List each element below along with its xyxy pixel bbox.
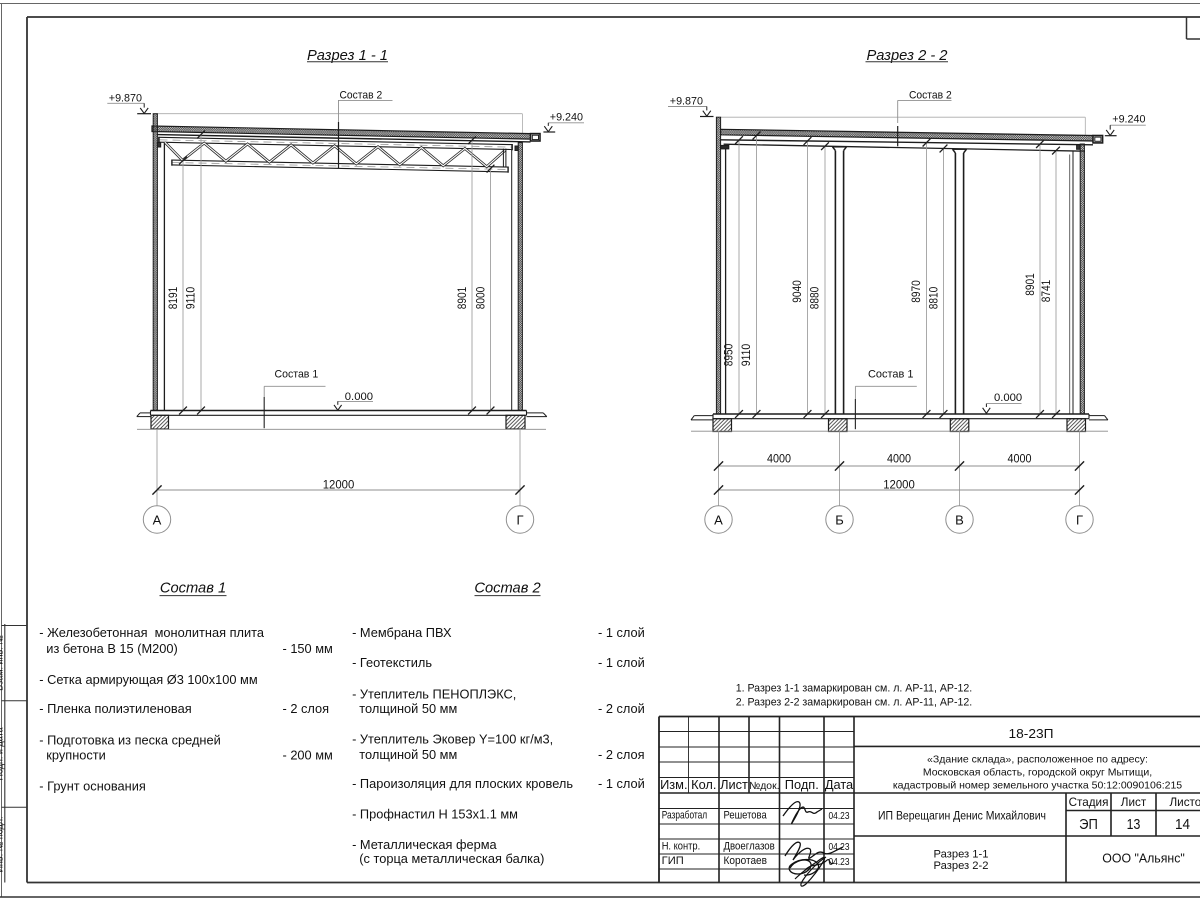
svg-text:8901: 8901 [1023,273,1037,296]
svg-text:Инв. № подл.: Инв. № подл. [0,816,5,872]
svg-text:04.23: 04.23 [829,842,850,853]
svg-text:Состав 1: Состав 1 [868,368,914,380]
svg-text:8970: 8970 [909,280,923,303]
svg-text:Кол.: Кол. [691,777,716,792]
svg-text:- Профнастил Н 153х1.1 мм: - Профнастил Н 153х1.1 мм [352,807,518,822]
svg-text:8880: 8880 [808,286,822,309]
svg-text:Взам. инв. №: Взам. инв. № [0,635,5,691]
svg-text:(с торца металлическая балка): (с торца металлическая балка) [359,851,544,866]
svg-text:12000: 12000 [883,478,915,492]
svg-text:8191: 8191 [166,287,180,310]
svg-text:Стадия: Стадия [1069,796,1109,809]
svg-text:1. Разрез 1-1 замаркирован см.: 1. Разрез 1-1 замаркирован см. л. АР-11,… [736,682,973,694]
svg-text:- Подготовка из песка средней: - Подготовка из песка средней [39,732,220,747]
svg-text:А: А [714,512,723,527]
svg-text:Состав 1: Состав 1 [160,580,226,596]
svg-text:ИП Верещагин Денис Михайлович: ИП Верещагин Денис Михайлович [878,810,1046,822]
svg-text:- 2 слой: - 2 слой [598,701,645,716]
svg-text:- 150 мм: - 150 мм [283,641,333,656]
svg-text:Лист: Лист [1121,796,1147,809]
svg-text:9110: 9110 [739,343,753,366]
svg-text:Разработал: Разработал [662,809,708,821]
svg-text:12000: 12000 [323,478,355,492]
svg-text:8000: 8000 [473,286,487,309]
svg-text:Б: Б [835,512,844,527]
svg-text:8810: 8810 [927,286,941,309]
svg-text:В: В [955,512,964,527]
svg-text:«Здание склада», расположенное: «Здание склада», расположенное по адресу… [927,754,1148,766]
svg-text:кадастровый номер земельного у: кадастровый номер земельного участка 50:… [893,780,1182,792]
svg-text:ГИП: ГИП [662,855,684,867]
svg-text:- Пленка полиэтиленовая: - Пленка полиэтиленовая [39,701,191,716]
svg-text:14: 14 [1175,817,1190,833]
svg-text:Листов: Листов [1170,796,1200,809]
svg-text:Двоеглазов: Двоеглазов [724,840,776,852]
svg-text:- Сетка армирующая Ø3 100х100: - Сетка армирующая Ø3 100х100 мм [39,672,257,687]
svg-text:13: 13 [1127,817,1141,833]
svg-text:Г: Г [1076,512,1083,527]
svg-text:2. Разрез 2-2 замаркирован см.: 2. Разрез 2-2 замаркирован см. л. АР-11,… [736,697,973,709]
svg-text:Разрез 2-2: Разрез 2-2 [934,860,989,872]
svg-text:8950: 8950 [722,343,736,366]
svg-text:Подп.: Подп. [785,777,819,792]
svg-text:+9.870: +9.870 [670,96,703,108]
svg-text:Изм.: Изм. [660,777,687,792]
svg-text:- Пароизоляция для плоских кро: - Пароизоляция для плоских кровель [352,776,573,791]
svg-text:- Грунт основания: - Грунт основания [39,779,146,794]
svg-text:8741: 8741 [1039,280,1053,303]
svg-text:- Утеплитель ПЕНОПЛЭКС,: - Утеплитель ПЕНОПЛЭКС, [352,687,516,702]
svg-text:04.23: 04.23 [829,857,850,868]
svg-text:9110: 9110 [184,286,198,309]
svg-text:Состав 2: Состав 2 [340,90,383,102]
svg-text:- Железобетонная монолитная п: - Железобетонная монолитная плита [39,625,265,640]
svg-text:Решетова: Решетова [724,809,767,821]
svg-text:Н. контр.: Н. контр. [662,840,701,852]
svg-text:18-23П: 18-23П [1009,726,1054,741]
svg-text:Состав 2: Состав 2 [474,580,540,596]
svg-text:толщиной 50 мм: толщиной 50 мм [359,701,457,716]
svg-text:4000: 4000 [1008,452,1032,466]
svg-text:+9.870: +9.870 [109,92,142,104]
svg-text:Состав 1: Состав 1 [275,368,319,380]
svg-text:- 1 слой: - 1 слой [598,625,645,640]
svg-text:Дата: Дата [825,777,854,792]
svg-text:8901: 8901 [455,287,469,310]
svg-text:толщиной 50 мм: толщиной 50 мм [359,747,457,762]
svg-text:- Геотекстиль: - Геотекстиль [352,655,432,670]
svg-text:- 2 слоя: - 2 слоя [283,701,330,716]
svg-text:+9.240: +9.240 [1112,113,1145,125]
svg-text:4000: 4000 [767,452,791,466]
svg-text:- 2 слоя: - 2 слоя [598,747,645,762]
svg-text:крупности: крупности [46,748,106,763]
svg-text:Коротаев: Коротаев [724,855,768,867]
svg-text:- Утеплитель Эковер Y=100 кг/м: - Утеплитель Эковер Y=100 кг/м3, [352,732,553,747]
svg-text:Московская область, городской: Московская область, городской округ Мыти… [923,767,1152,779]
svg-text:А: А [153,512,162,527]
svg-text:Лист: Лист [720,777,748,792]
svg-text:ЭП: ЭП [1079,817,1098,833]
svg-text:№док.: №док. [749,781,779,792]
svg-text:4000: 4000 [887,452,911,466]
svg-text:Разрез 1-1: Разрез 1-1 [934,848,989,860]
svg-text:- 1 слой: - 1 слой [598,776,645,791]
svg-text:9040: 9040 [790,280,804,303]
svg-text:Состав 2: Состав 2 [909,90,952,102]
svg-text:Г: Г [516,512,523,527]
svg-text:- Мембрана ПВХ: - Мембрана ПВХ [352,625,452,640]
svg-text:из бетона В 15 (М200): из бетона В 15 (М200) [46,641,177,656]
svg-text:- 200 мм: - 200 мм [283,748,333,763]
svg-text:- Металлическая ферма: - Металлическая ферма [352,837,497,852]
svg-text:- 1 слой: - 1 слой [598,655,645,670]
svg-text:0.000: 0.000 [994,392,1022,404]
svg-text:+9.240: +9.240 [550,112,583,124]
svg-text:Подп. и дата: Подп. и дата [0,727,5,780]
svg-text:04.23: 04.23 [829,811,850,822]
svg-text:ООО "Альянс": ООО "Альянс" [1102,850,1185,865]
